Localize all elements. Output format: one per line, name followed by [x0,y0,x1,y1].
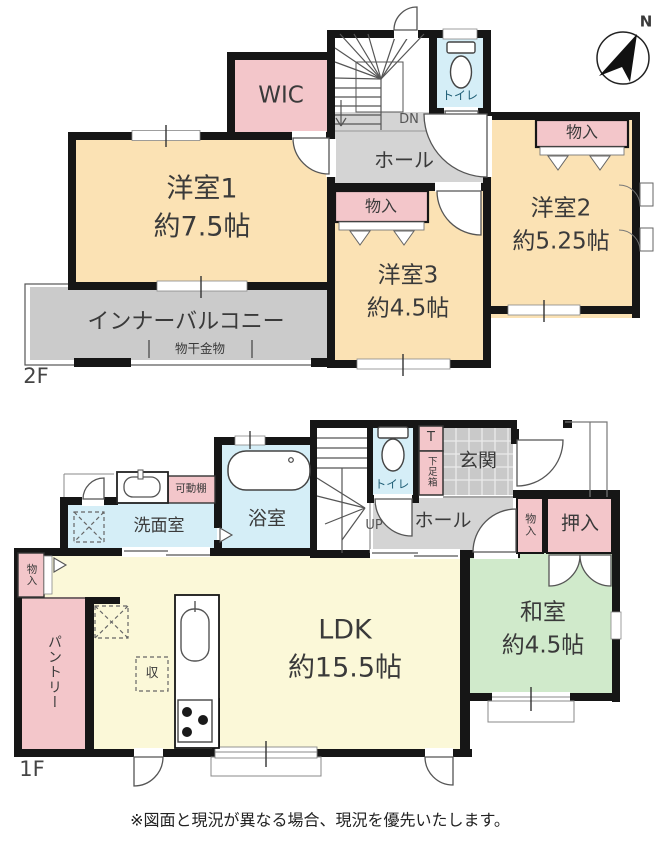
bath-label: 浴室 [248,506,286,533]
ldk-label: LDK 約15.5帖 [288,612,402,689]
ldk-area: 約15.5帖 [288,650,402,688]
storage-pantry-label: 物入 [24,564,39,587]
room1-area: 約7.5帖 [154,209,251,247]
stairs-top-window-swing [394,7,417,30]
hall-1f-label: ホール [414,508,471,535]
entrance-label: 玄関 [459,448,497,475]
floor1-tag: 1F [19,755,44,785]
drying-label: 物干金物 [175,340,225,358]
wic-label: WIC [258,80,304,113]
compass-north-label: N [640,11,653,32]
up-label: UP [365,517,382,535]
shoe-box-label: 下足箱 [424,456,437,488]
disclaimer-text: ※図面と現況が異なる場合、現況を優先いたします。 [130,810,510,833]
washroom-label: 洗面室 [134,514,185,538]
washroom-door [83,478,104,499]
dn-label: DN [399,111,419,129]
oshiire-label: 押入 [561,511,599,538]
room1-name: 洋室1 [154,171,251,209]
porch-outline [565,422,607,497]
toilet-2f-label: トイレ [442,87,478,104]
kitchen-sink [181,609,209,661]
washitsu-side-window [611,612,621,639]
storage-2f-right-label: 物入 [566,122,598,145]
bathtub [228,451,310,490]
washitsu-name: 和室 [502,596,585,629]
washitsu-area: 約4.5帖 [502,629,585,662]
floor2-tag: 2F [23,362,48,392]
room3-name: 洋室3 [367,259,450,292]
shoe-t-label: T [427,429,435,447]
floorplan-page: WIC DN トイレ ホール 物入 物入 洋室1 約7.5帖 洋室2 約5.25… [0,0,669,854]
storage-symbol-label: 収 [145,665,158,683]
toilet-1f-label: トイレ [375,476,410,492]
room2-side-window-2 [640,228,653,251]
shelf-label: 可動棚 [175,482,207,497]
vanity-sink [124,477,160,497]
entry-door-gap [517,419,563,429]
room2-side-window-1 [640,183,653,206]
room2-area: 約5.25帖 [512,225,609,258]
room1-balcony-window [157,281,247,291]
hall-2f-label: ホール [374,146,434,174]
toilet-2f-window [443,29,477,39]
room2-name: 洋室2 [512,192,609,225]
compass-icon [597,32,649,84]
washitsu-label: 和室 約4.5帖 [502,596,585,661]
ldk-name: LDK [288,612,402,650]
vanity-faucet [138,470,143,479]
ldk-exterior-door-left [134,757,163,786]
storage-2f-mid-label: 物入 [365,196,397,219]
hall-ldk-slide-gap [370,549,460,559]
entry-door [517,440,563,486]
room3-area: 約4.5帖 [367,292,450,325]
storage-hall-label: 物入 [522,513,538,537]
room1-label: 洋室1 約7.5帖 [154,171,251,248]
room3-label: 洋室3 約4.5帖 [367,259,450,324]
ldk-exterior-door-right [425,757,453,785]
balcony-label: インナーバルコニー [87,306,284,337]
pantry-label: パントリー [43,635,63,710]
room2-label: 洋室2 約5.25帖 [512,192,609,257]
